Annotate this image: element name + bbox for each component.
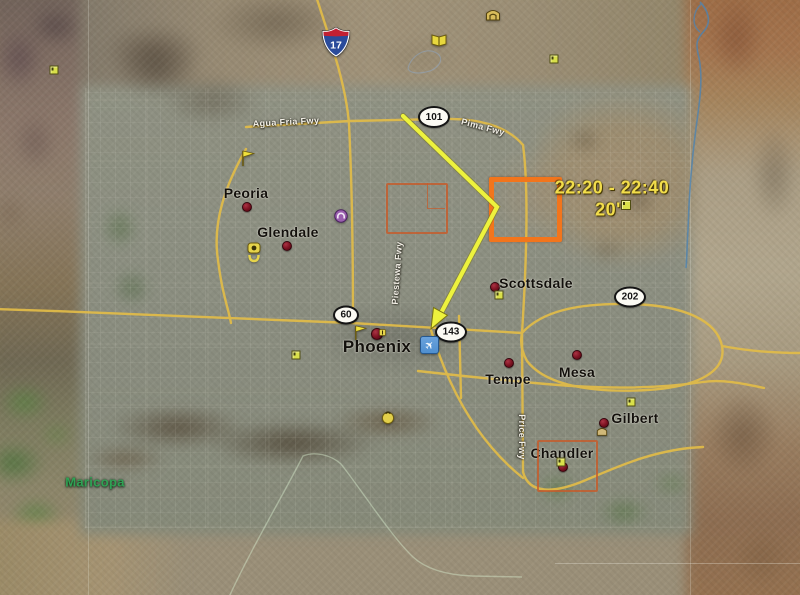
time-range-label: 22:20 - 22:40 — [555, 178, 670, 199]
sketch-outline — [408, 51, 441, 73]
annotation-box-primary — [489, 177, 562, 242]
placemark-square-icon[interactable] — [292, 351, 301, 360]
annotation-box-secondary-chandler — [537, 440, 598, 492]
route-shield-60-number: 60 — [340, 310, 351, 321]
route-shield-202: 202 — [614, 287, 646, 308]
restaurant-poi-icon[interactable] — [379, 329, 386, 336]
highway-road — [217, 149, 246, 323]
city-label-scottsdale[interactable]: Scottsdale — [499, 275, 573, 291]
city-label-peoria[interactable]: Peoria — [224, 185, 269, 201]
highway-road — [722, 346, 800, 353]
boundary-line — [229, 454, 522, 595]
route-shield-202-number: 202 — [622, 292, 639, 303]
duration-label: 20' — [595, 200, 621, 221]
annotation-box-inner-step — [427, 183, 445, 209]
placemark-square-icon[interactable] — [495, 291, 504, 300]
placemark-square-icon[interactable] — [50, 66, 59, 75]
river-path — [686, 2, 708, 268]
route-shield-60: 60 — [333, 306, 359, 325]
city-label-glendale[interactable]: Glendale — [257, 224, 319, 240]
flag-icon-phoenix[interactable] — [353, 324, 368, 341]
bell-poi-icon[interactable] — [381, 410, 395, 425]
svg-text:17: 17 — [330, 40, 342, 52]
placemark-square-icon[interactable] — [550, 55, 559, 64]
interstate-17-shield: 17 — [322, 27, 350, 57]
satellite-map[interactable]: 17 101 60 143 202 Agua Fria Fwy Pima Fwy… — [0, 0, 800, 595]
airport-icon[interactable]: ✈ — [420, 336, 439, 354]
monument-icon[interactable] — [485, 7, 501, 21]
tunnel-poi-icon[interactable] — [334, 209, 348, 223]
route-shield-143-number: 143 — [443, 327, 460, 338]
camera-poi-icon[interactable] — [246, 242, 262, 263]
city-dot-peoria[interactable] — [242, 202, 252, 212]
city-dot-glendale[interactable] — [282, 241, 292, 251]
river-loop — [694, 4, 701, 32]
city-dot-tempe[interactable] — [504, 358, 514, 368]
route-shield-101: 101 — [418, 106, 450, 128]
airplane-glyph: ✈ — [422, 338, 436, 352]
city-label-gilbert[interactable]: Gilbert — [611, 410, 658, 426]
route-shield-143: 143 — [435, 322, 467, 343]
monument-small-icon[interactable] — [596, 426, 608, 436]
city-label-tempe[interactable]: Tempe — [485, 371, 531, 387]
highway-road — [521, 304, 722, 391]
city-dot-mesa[interactable] — [572, 350, 582, 360]
city-label-mesa[interactable]: Mesa — [559, 364, 595, 380]
highway-road — [431, 330, 523, 478]
city-label-maricopa[interactable]: Maricopa — [65, 475, 124, 490]
duration-placemark-icon[interactable] — [621, 200, 631, 210]
route-shield-101-number: 101 — [426, 112, 443, 123]
placemark-square-icon[interactable] — [627, 398, 636, 407]
flag-icon-peoria[interactable] — [240, 149, 256, 167]
road-label-price-fwy: Price Fwy — [517, 414, 527, 460]
book-icon[interactable] — [431, 33, 447, 47]
